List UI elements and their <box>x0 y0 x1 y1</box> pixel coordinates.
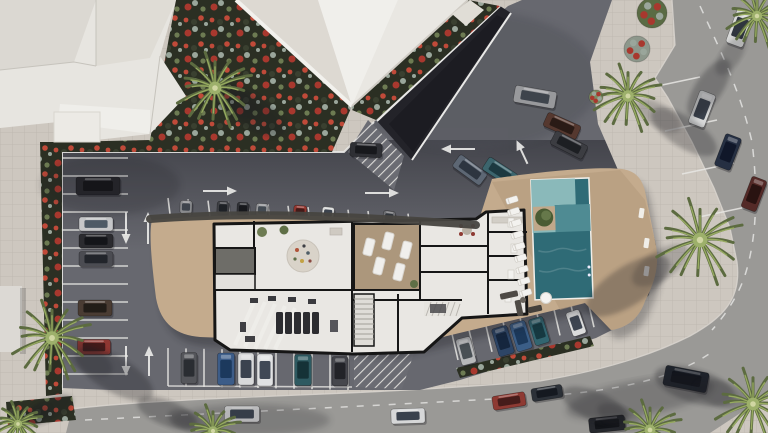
storage-room <box>215 248 255 274</box>
site-plan-canvas <box>0 0 768 433</box>
car <box>79 252 115 269</box>
car <box>181 353 199 386</box>
car <box>257 354 275 388</box>
stairwell <box>354 294 374 346</box>
planter-bush <box>589 90 603 104</box>
aerial-site-plan-render <box>0 0 768 433</box>
building-cast-shadow <box>40 155 180 215</box>
neighbour-building-west <box>0 0 186 142</box>
umbrella <box>541 293 552 304</box>
roof-block <box>54 112 100 142</box>
pool-mid-water <box>555 204 591 232</box>
car <box>78 300 114 318</box>
car <box>295 355 314 388</box>
car <box>332 357 350 388</box>
car <box>391 408 427 426</box>
pool <box>531 178 593 300</box>
planter-bush <box>637 0 667 28</box>
car <box>238 353 256 387</box>
planter-bush <box>624 36 650 62</box>
car <box>79 234 115 250</box>
small-room <box>215 274 255 290</box>
car <box>218 353 237 387</box>
treadmills <box>276 312 319 334</box>
car <box>350 142 384 160</box>
car <box>79 217 115 233</box>
small-structure-southwest <box>0 286 26 354</box>
